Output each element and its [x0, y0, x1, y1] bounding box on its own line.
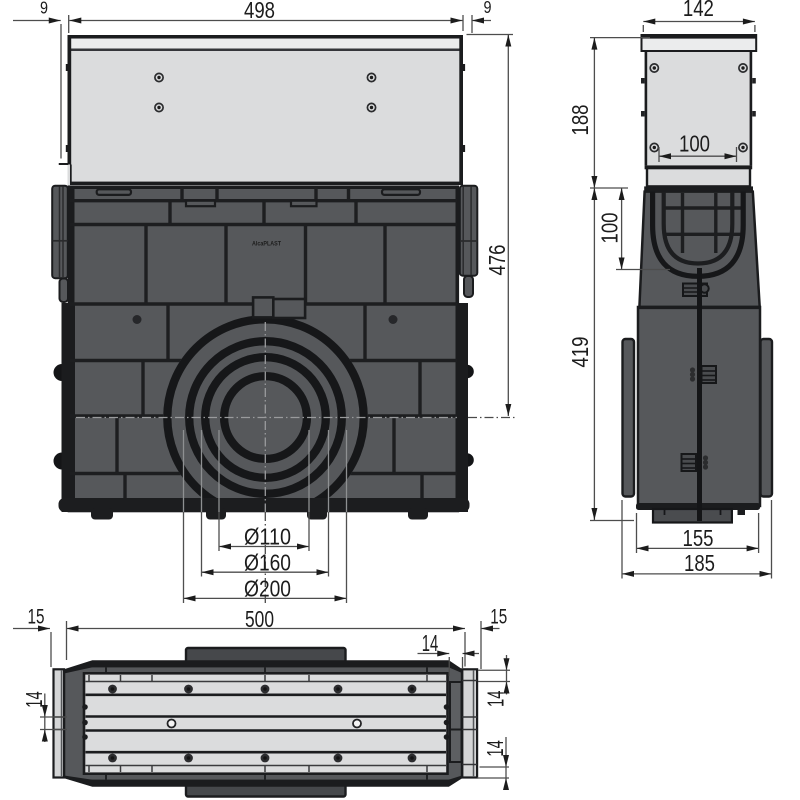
svg-text:9: 9	[484, 0, 492, 17]
svg-text:155: 155	[683, 525, 714, 551]
svg-text:476: 476	[484, 245, 510, 276]
svg-text:100: 100	[597, 213, 623, 244]
svg-text:AlcaPLAST: AlcaPLAST	[252, 242, 281, 248]
svg-text:14: 14	[422, 630, 439, 656]
svg-text:498: 498	[244, 0, 275, 23]
svg-text:15: 15	[28, 605, 45, 629]
svg-text:185: 185	[684, 550, 715, 576]
svg-text:9: 9	[40, 0, 48, 18]
svg-text:Ø200: Ø200	[244, 575, 291, 601]
svg-text:Ø160: Ø160	[244, 549, 291, 575]
svg-text:14: 14	[482, 740, 508, 757]
svg-text:100: 100	[679, 131, 710, 157]
svg-text:15: 15	[490, 605, 507, 629]
svg-text:188: 188	[567, 105, 593, 136]
svg-text:Ø110: Ø110	[244, 524, 291, 550]
svg-text:142: 142	[683, 0, 714, 21]
svg-text:419: 419	[567, 337, 593, 368]
